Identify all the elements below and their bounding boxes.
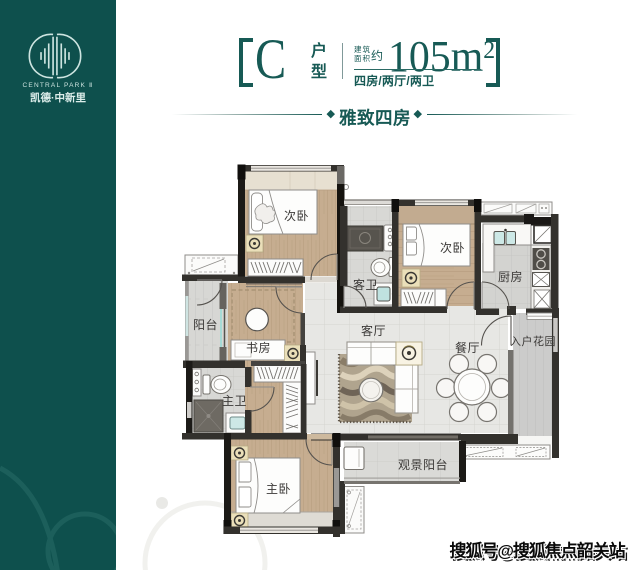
svg-text:客卫: 客卫 xyxy=(353,277,378,292)
svg-text:观景阳台: 观景阳台 xyxy=(398,457,448,472)
svg-text:次卧: 次卧 xyxy=(440,241,465,255)
svg-text:主卧: 主卧 xyxy=(266,482,291,496)
svg-text:书房: 书房 xyxy=(246,340,271,355)
svg-text:餐厅: 餐厅 xyxy=(455,340,480,355)
svg-text:主卫: 主卫 xyxy=(222,394,247,408)
svg-text:入户花园: 入户花园 xyxy=(510,334,556,348)
svg-text:阳台: 阳台 xyxy=(193,317,218,332)
svg-text:客厅: 客厅 xyxy=(361,323,386,338)
svg-text:次卧: 次卧 xyxy=(284,209,309,223)
svg-text:厨房: 厨房 xyxy=(498,269,523,284)
svg-text:搜狐号@搜狐焦点韶关站: 搜狐号@搜狐焦点韶关站 xyxy=(450,541,626,561)
